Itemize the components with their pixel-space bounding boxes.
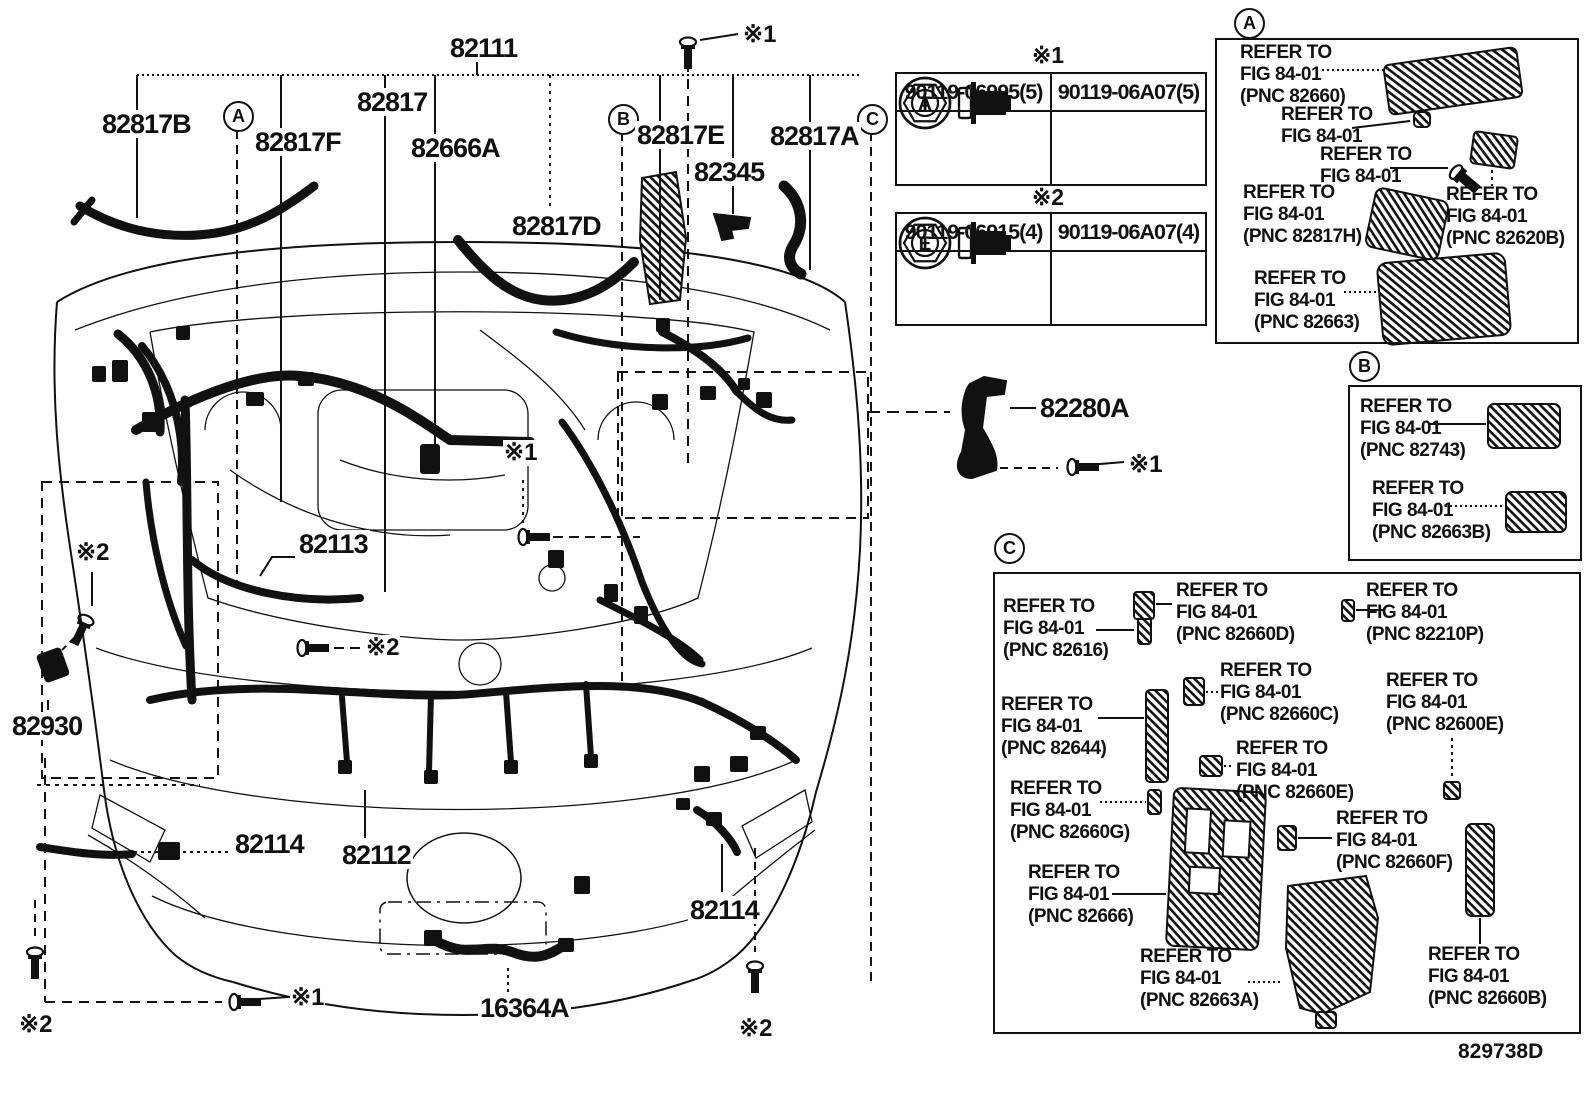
table2-note: ※2 <box>1032 184 1064 211</box>
bolt-icon: T <box>1052 252 1205 324</box>
marker-a-diagram: A <box>223 101 254 132</box>
screw-icon <box>298 640 330 656</box>
part-label-82111: 82111 <box>448 34 519 62</box>
fastener-table-2: 90119-06915(4) E 90119-06A07(4) T <box>895 212 1207 326</box>
figure-code: 829738D <box>1458 1040 1543 1064</box>
refer-entry-82660g: REFER TO FIG 84-01 (PNC 82660G) <box>1010 778 1130 844</box>
part-label-82666a: 82666A <box>409 134 502 162</box>
part-label-82114-right: 82114 <box>688 896 761 924</box>
screw-icon <box>747 962 763 994</box>
part-82280a-shape <box>958 377 1006 478</box>
refer-entry-82660e: REFER TO FIG 84-01 (PNC 82660E) <box>1236 738 1354 804</box>
marker-c-section: C <box>994 533 1025 564</box>
refer-entry-82663b: REFER TO FIG 84-01 (PNC 82663B) <box>1372 478 1491 544</box>
part-82930-shape <box>36 646 71 683</box>
refer-entry-82743: REFER TO FIG 84-01 (PNC 82743) <box>1360 396 1465 462</box>
refer-entry-82644: REFER TO FIG 84-01 (PNC 82644) <box>1001 694 1106 760</box>
parts-diagram-page: A B C A B C 82111 82817 82817B 82817F 82… <box>0 0 1592 1099</box>
screw-icon <box>230 994 262 1010</box>
refer-entry-82666: REFER TO FIG 84-01 (PNC 82666) <box>1028 862 1133 928</box>
marker-a-section: A <box>1234 8 1265 39</box>
part-label-82930: 82930 <box>10 712 84 740</box>
refer-entry-82817h: REFER TO FIG 84-01 (PNC 82817H) <box>1243 182 1362 248</box>
part-label-82817d: 82817D <box>510 212 603 240</box>
part-label-82113: 82113 <box>297 530 370 558</box>
fastener-part-number: 90119-06A07(4) <box>1052 214 1205 252</box>
ref-mark-2-bottom-right: ※2 <box>738 1016 773 1042</box>
refer-entry-82600e: REFER TO FIG 84-01 (PNC 82600E) <box>1386 670 1504 736</box>
ref-mark-2-bottom-left: ※2 <box>18 1012 53 1038</box>
refer-entry-82620b: REFER TO FIG 84-01 (PNC 82620B) <box>1446 184 1565 250</box>
ref-mark-1-bottom-left: ※1 <box>290 985 325 1011</box>
refer-entry-nut: REFER TO FIG 84-01 <box>1281 104 1373 148</box>
refer-entry-82660d: REFER TO FIG 84-01 (PNC 82660D) <box>1176 580 1295 646</box>
refer-entry-82616: REFER TO FIG 84-01 (PNC 82616) <box>1003 596 1108 662</box>
table1-note: ※1 <box>1032 42 1064 69</box>
ref-mark-1-82280a: ※1 <box>1128 452 1163 478</box>
svg-text:T: T <box>919 94 931 115</box>
refer-entry-82660f: REFER TO FIG 84-01 (PNC 82660F) <box>1336 808 1453 874</box>
screw-icon <box>1068 459 1100 475</box>
refer-entry-82660c: REFER TO FIG 84-01 (PNC 82660C) <box>1220 660 1339 726</box>
part-label-82114-left: 82114 <box>233 830 306 858</box>
part-label-82817e: 82817E <box>635 121 726 149</box>
fastener-table-1: 90119-06995(5) A 90119-06A07(5) T <box>895 72 1207 186</box>
part-label-82280a: 82280A <box>1038 394 1131 422</box>
fastener-part-number: 90119-06A07(5) <box>1052 74 1205 112</box>
ref-mark-1-top: ※1 <box>742 22 777 48</box>
part-label-82817a: 82817A <box>768 122 861 150</box>
screw-icon <box>519 529 551 545</box>
refer-entry-82660b: REFER TO FIG 84-01 (PNC 82660B) <box>1428 944 1547 1010</box>
wiring-harness-bundles <box>40 186 801 957</box>
svg-text:T: T <box>919 234 931 255</box>
refer-entry-82660: REFER TO FIG 84-01 (PNC 82660) <box>1240 42 1345 108</box>
ref-mark-2-left: ※2 <box>75 540 110 566</box>
part-label-82817: 82817 <box>355 88 429 116</box>
ref-mark-1-middle: ※1 <box>503 440 538 466</box>
bolt-icon: T <box>1052 112 1205 184</box>
part-label-16364a: 16364A <box>478 994 571 1022</box>
part-label-82345: 82345 <box>692 158 766 186</box>
screw-icon <box>27 948 43 980</box>
part-label-82817b: 82817B <box>100 110 193 138</box>
marker-c-diagram: C <box>857 104 888 135</box>
refer-entry-82210p: REFER TO FIG 84-01 (PNC 82210P) <box>1366 580 1484 646</box>
part-label-82817f: 82817F <box>253 128 343 156</box>
marker-b-section: B <box>1349 351 1380 382</box>
refer-entry-82663a: REFER TO FIG 84-01 (PNC 82663A) <box>1140 946 1259 1012</box>
fastener-cell: 90119-06A07(5) T <box>1052 74 1205 184</box>
screw-icon <box>680 38 696 70</box>
fastener-cell: 90119-06A07(4) T <box>1052 214 1205 324</box>
ref-mark-2-middle: ※2 <box>365 635 400 661</box>
part-label-82112: 82112 <box>340 841 413 869</box>
refer-entry-82663: REFER TO FIG 84-01 (PNC 82663) <box>1254 268 1359 334</box>
